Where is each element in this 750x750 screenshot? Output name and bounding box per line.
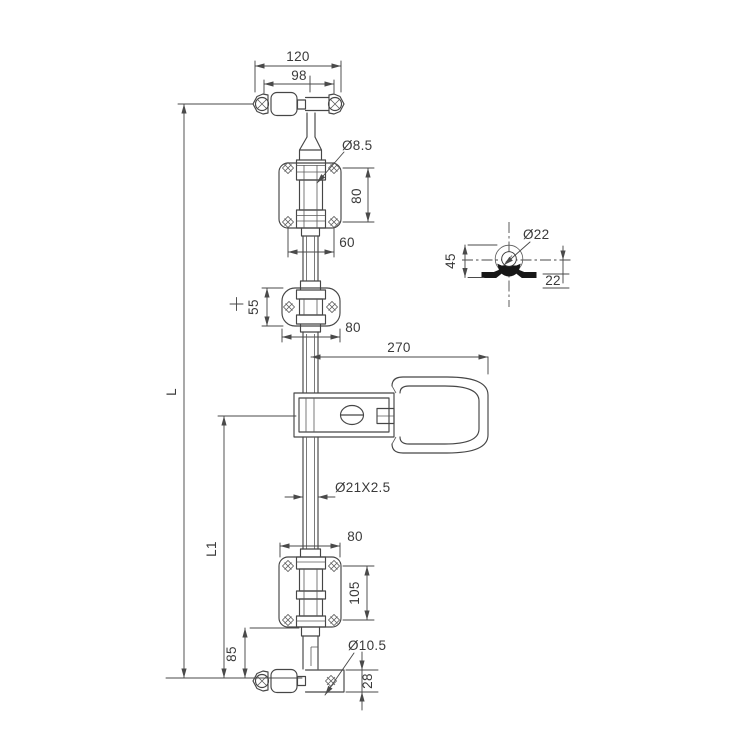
dimension-22: 22 (543, 246, 569, 288)
dimension-80-middle: 80 (282, 320, 361, 342)
keeper-section-view (462, 222, 572, 307)
dimension-85: 85 (224, 628, 299, 678)
dim-120-label: 120 (286, 49, 309, 64)
dim-28-label: 28 (360, 673, 375, 689)
dim-80-middle-label: 80 (345, 320, 361, 335)
dimension-80-upper: 80 (343, 168, 374, 222)
lock-body (294, 393, 394, 437)
lock-rod-assembly-drawing: L L1 85 120 98 (0, 0, 750, 750)
technical-drawing-page: L L1 85 120 98 (0, 0, 750, 750)
dimension-overall-L: L (164, 104, 302, 678)
dia-21-label: Ø21X2.5 (335, 480, 390, 495)
dim-45-label: 45 (443, 253, 458, 269)
dia-8-5-label: Ø8.5 (342, 138, 372, 153)
keeper-right-leg (514, 265, 536, 278)
dim-270-label: 270 (387, 340, 410, 355)
dimension-98: 98 (264, 68, 334, 93)
dim-60-label: 60 (339, 235, 355, 250)
middle-guide-mounting-holes (284, 302, 338, 313)
dimension-80-lower: 80 (280, 529, 363, 557)
rod-segment-2 (303, 332, 318, 393)
dimension-60: 60 (288, 228, 355, 257)
upper-guide-bracket (279, 160, 341, 236)
dim-L-label: L (164, 388, 179, 396)
lower-guide-bracket (279, 549, 341, 636)
dimension-L1: L1 (204, 416, 296, 678)
rod-segment-4 (303, 636, 318, 669)
middle-guide-plate (282, 288, 340, 326)
dimension-28: 28 (346, 652, 378, 710)
keeper-left-leg (482, 265, 504, 278)
dim-80-upper-label: 80 (349, 188, 364, 204)
plus-mark (230, 298, 243, 311)
rod-upper-stem (300, 113, 322, 160)
dimension-105: 105 (343, 566, 374, 620)
rod-segment-3 (303, 437, 318, 549)
dimension-dia-21: Ø21X2.5 (285, 480, 390, 497)
dimension-dia-22: Ø22 (504, 227, 549, 265)
dim-22-label: 22 (545, 273, 561, 288)
door-handle (392, 377, 488, 453)
dimension-270: 270 (311, 340, 488, 374)
bottom-cam (253, 670, 344, 693)
dim-105-label: 105 (347, 581, 362, 604)
dimension-55: 55 (246, 288, 283, 326)
dim-L1-label: L1 (204, 541, 219, 557)
dimension-dia-10-5: Ø10.5 (325, 638, 386, 695)
rod-segment-1 (303, 236, 318, 281)
dim-85-label: 85 (224, 646, 239, 662)
middle-guide-bracket (282, 281, 340, 332)
top-cam (253, 93, 344, 116)
dia-10-5-label: Ø10.5 (348, 638, 386, 653)
dim-98-label: 98 (291, 68, 307, 83)
dim-55-label: 55 (246, 299, 261, 315)
dia-22-label: Ø22 (523, 227, 549, 242)
dim-80-lower-label: 80 (347, 529, 363, 544)
